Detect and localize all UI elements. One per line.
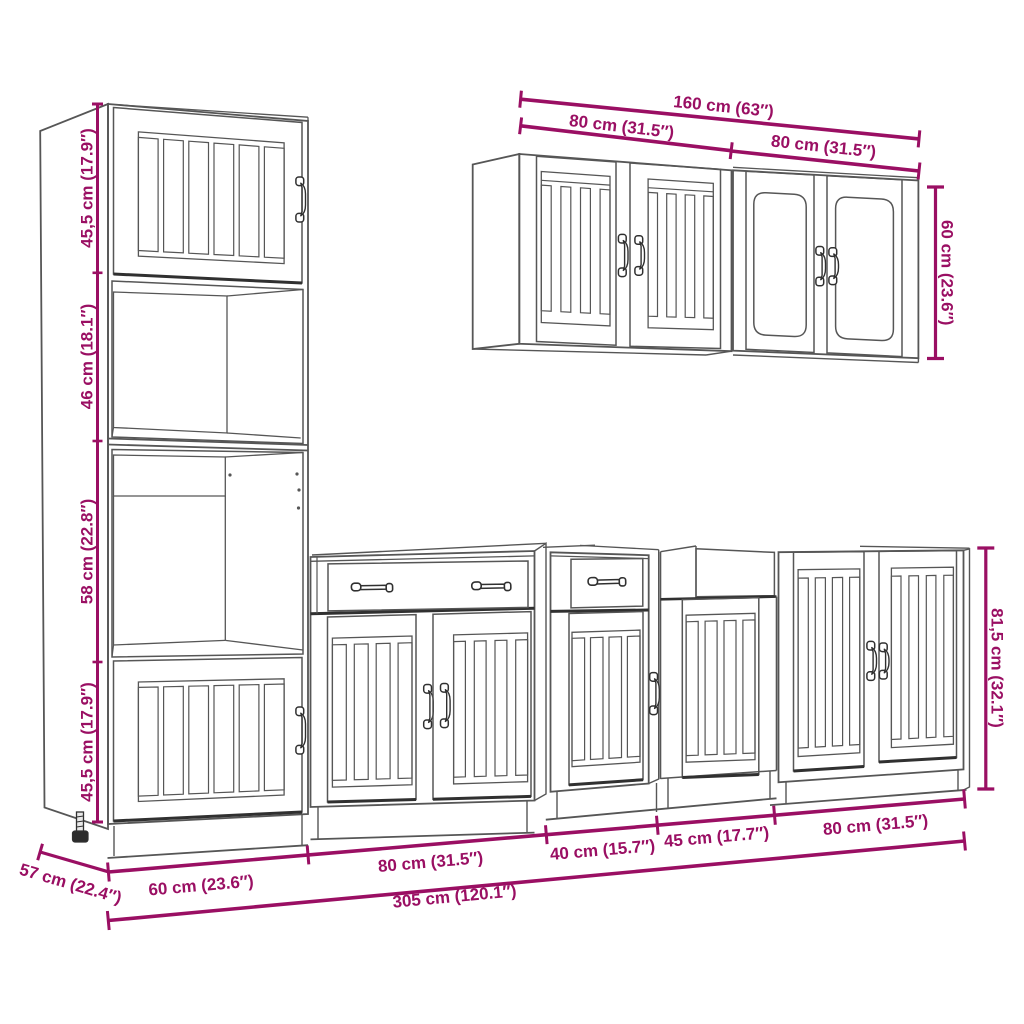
svg-text:45,5 cm (17.9″): 45,5 cm (17.9″) bbox=[78, 682, 97, 802]
svg-text:58 cm (22.8″): 58 cm (22.8″) bbox=[78, 499, 97, 604]
svg-text:46 cm (18.1″): 46 cm (18.1″) bbox=[78, 304, 97, 409]
svg-text:45,5 cm (17.9″): 45,5 cm (17.9″) bbox=[78, 128, 97, 248]
svg-text:81,5 cm (32.1″): 81,5 cm (32.1″) bbox=[988, 608, 1007, 728]
svg-text:60 cm (23.6″): 60 cm (23.6″) bbox=[938, 220, 957, 325]
